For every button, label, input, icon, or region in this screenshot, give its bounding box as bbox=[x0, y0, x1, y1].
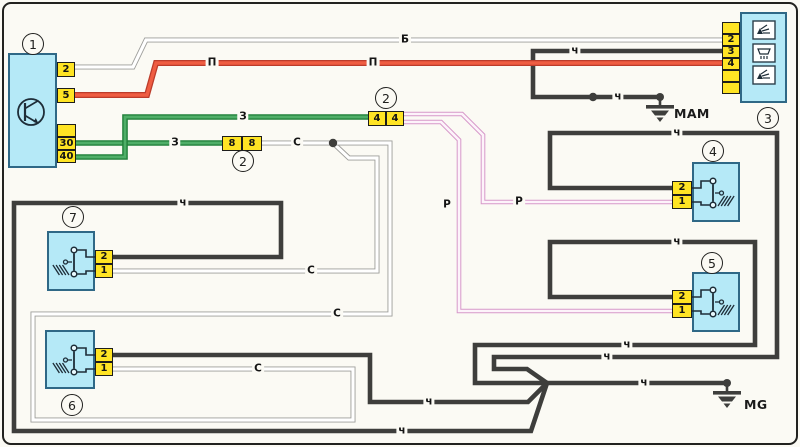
connector-2b-pin-8: 8 bbox=[222, 136, 242, 151]
component-3-terminal-2: 2 bbox=[722, 34, 740, 46]
component-4-number: 4 bbox=[702, 140, 724, 162]
component-1-terminal-30: 30 bbox=[57, 137, 76, 150]
wire-color-label-П-1: П bbox=[206, 57, 219, 68]
component-1-terminal-5: 5 bbox=[57, 88, 75, 103]
labels-layer: MAMMG25304012343214215217216442882БППЗЗС… bbox=[0, 0, 800, 447]
connector-2b-pin-8: 8 bbox=[242, 136, 262, 151]
wiring-diagram: MAMMG25304012343214215217216442882БППЗЗС… bbox=[0, 0, 800, 447]
connector-2b-number: 2 bbox=[232, 150, 254, 172]
wire-color-label-З-4: З bbox=[237, 111, 248, 122]
component-5-terminal-2: 2 bbox=[672, 290, 692, 304]
connector-2a-number: 2 bbox=[375, 87, 397, 109]
wire-color-label-С-6: С bbox=[305, 265, 317, 276]
wire-color-label-ч-11: ч bbox=[569, 45, 580, 56]
component-3-terminal-blank bbox=[722, 70, 740, 82]
component-5-terminal-1: 1 bbox=[672, 304, 692, 318]
wire-color-label-С-5: С bbox=[291, 137, 303, 148]
wire-color-label-С-8: С bbox=[252, 363, 264, 374]
component-6-terminal-2: 2 bbox=[95, 348, 113, 362]
wire-color-label-ч-19: ч bbox=[396, 425, 407, 436]
component-1-terminal-2: 2 bbox=[57, 62, 75, 77]
wire-color-label-ч-13: ч bbox=[671, 127, 682, 138]
connector-2a-pin-4: 4 bbox=[368, 111, 386, 126]
wire-color-label-ч-12: ч bbox=[612, 91, 623, 102]
component-7-terminal-2: 2 bbox=[95, 250, 113, 264]
component-4-terminal-1: 1 bbox=[672, 195, 692, 209]
wire-color-label-ч-14: ч bbox=[671, 236, 682, 247]
component-6-terminal-1: 1 bbox=[95, 362, 113, 376]
wire-color-label-Р-9: Р bbox=[513, 196, 525, 207]
wire-color-label-ч-17: ч bbox=[638, 377, 649, 388]
component-1-number: 1 bbox=[22, 33, 44, 55]
wire-color-label-Р-10: Р bbox=[441, 199, 453, 210]
wire-color-label-Б-0: Б bbox=[399, 34, 411, 45]
wire-color-label-ч-16: ч bbox=[601, 351, 612, 362]
component-3-terminal-blank bbox=[722, 22, 740, 34]
component-7-terminal-1: 1 bbox=[95, 264, 113, 278]
component-7-number: 7 bbox=[62, 206, 84, 228]
connector-2a-pin-4: 4 bbox=[386, 111, 404, 126]
wire-color-label-З-3: З bbox=[169, 137, 180, 148]
component-4-terminal-2: 2 bbox=[672, 181, 692, 195]
wire-color-label-ч-20: ч bbox=[423, 396, 434, 407]
wire-color-label-ч-15: ч bbox=[621, 339, 632, 350]
wire-color-label-С-7: С bbox=[331, 308, 343, 319]
component-3-terminal-blank bbox=[722, 82, 740, 94]
component-5-number: 5 bbox=[701, 252, 723, 274]
ground-label-mg: MG bbox=[744, 397, 768, 412]
component-3-terminal-3: 3 bbox=[722, 46, 740, 58]
component-1-terminal-40: 40 bbox=[57, 150, 76, 163]
component-3-terminal-4: 4 bbox=[722, 58, 740, 70]
component-1-terminal-blank bbox=[57, 124, 76, 137]
ground-label-mam: MAM bbox=[674, 106, 710, 121]
wire-color-label-ч-18: ч bbox=[177, 197, 188, 208]
component-3-number: 3 bbox=[757, 107, 779, 129]
wire-color-label-П-2: П bbox=[367, 57, 380, 68]
component-6-number: 6 bbox=[61, 394, 83, 416]
